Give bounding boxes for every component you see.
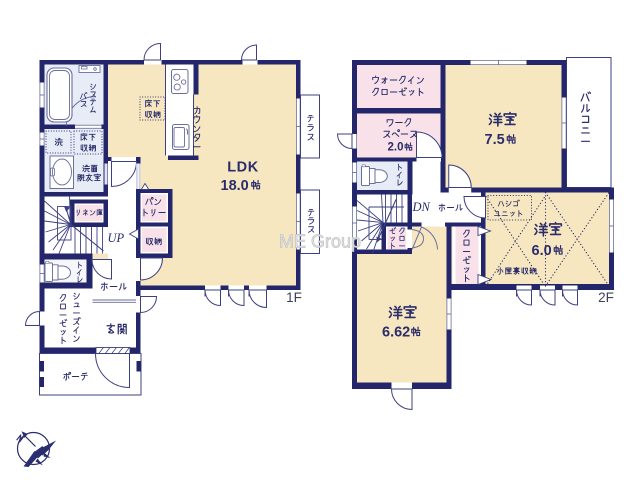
svg-text:2F: 2F xyxy=(598,290,614,305)
svg-text:ME Group: ME Group xyxy=(279,232,361,252)
svg-text:UP: UP xyxy=(108,231,125,245)
svg-text:1F: 1F xyxy=(286,290,302,305)
svg-text:18.0: 18.0 xyxy=(221,178,249,194)
svg-text:DN: DN xyxy=(412,200,431,214)
svg-text:7.5: 7.5 xyxy=(485,132,505,148)
svg-text:6.0: 6.0 xyxy=(532,243,552,259)
svg-text:LDK: LDK xyxy=(227,160,259,176)
svg-text:2.0: 2.0 xyxy=(388,142,404,154)
svg-text:6.62: 6.62 xyxy=(382,325,410,341)
